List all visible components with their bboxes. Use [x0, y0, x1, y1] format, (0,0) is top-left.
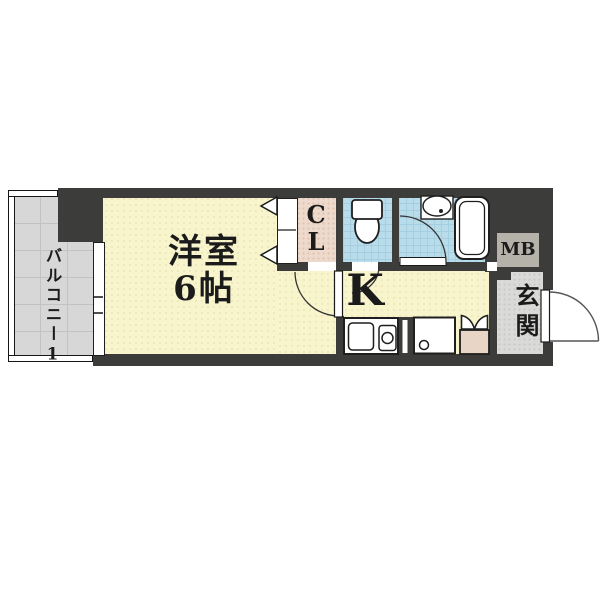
shoe-cabinet-door-icon	[475, 316, 488, 330]
shoe-cabinet-door-icon	[462, 316, 475, 330]
closet-label-line1: C	[299, 201, 333, 228]
entrance-label: 玄関	[508, 283, 543, 343]
bath-sink-drain-icon	[439, 209, 443, 213]
western-room-label: 洋室 6帖	[106, 234, 302, 308]
toilet-tank-icon	[352, 200, 382, 219]
balcony-label: バルコニー1	[40, 247, 64, 367]
kitchen-divider-slit	[403, 320, 408, 353]
closet-label: C L	[299, 201, 333, 255]
floor-plan: バルコニー1 洋室 6帖 C L K MB 玄関	[0, 0, 600, 600]
western-room-name: 洋室	[106, 234, 302, 271]
meter-box-label: MB	[497, 233, 539, 267]
shoe-cabinet-icon	[460, 330, 489, 354]
bath-sink-basin-icon	[423, 196, 451, 216]
closet-label-line2: L	[299, 228, 333, 255]
kitchen-label: K	[341, 268, 389, 314]
washer-drain-icon	[420, 341, 429, 350]
entrance-door-arc	[550, 292, 599, 341]
kitchen-sink-icon	[349, 323, 374, 350]
closet-door-chevron-icon	[261, 197, 277, 215]
kitchen-burner-icon	[382, 333, 393, 344]
western-room-size: 6帖	[106, 271, 302, 308]
bath-door-arc	[400, 216, 446, 262]
bath-door-leaf	[400, 258, 446, 266]
